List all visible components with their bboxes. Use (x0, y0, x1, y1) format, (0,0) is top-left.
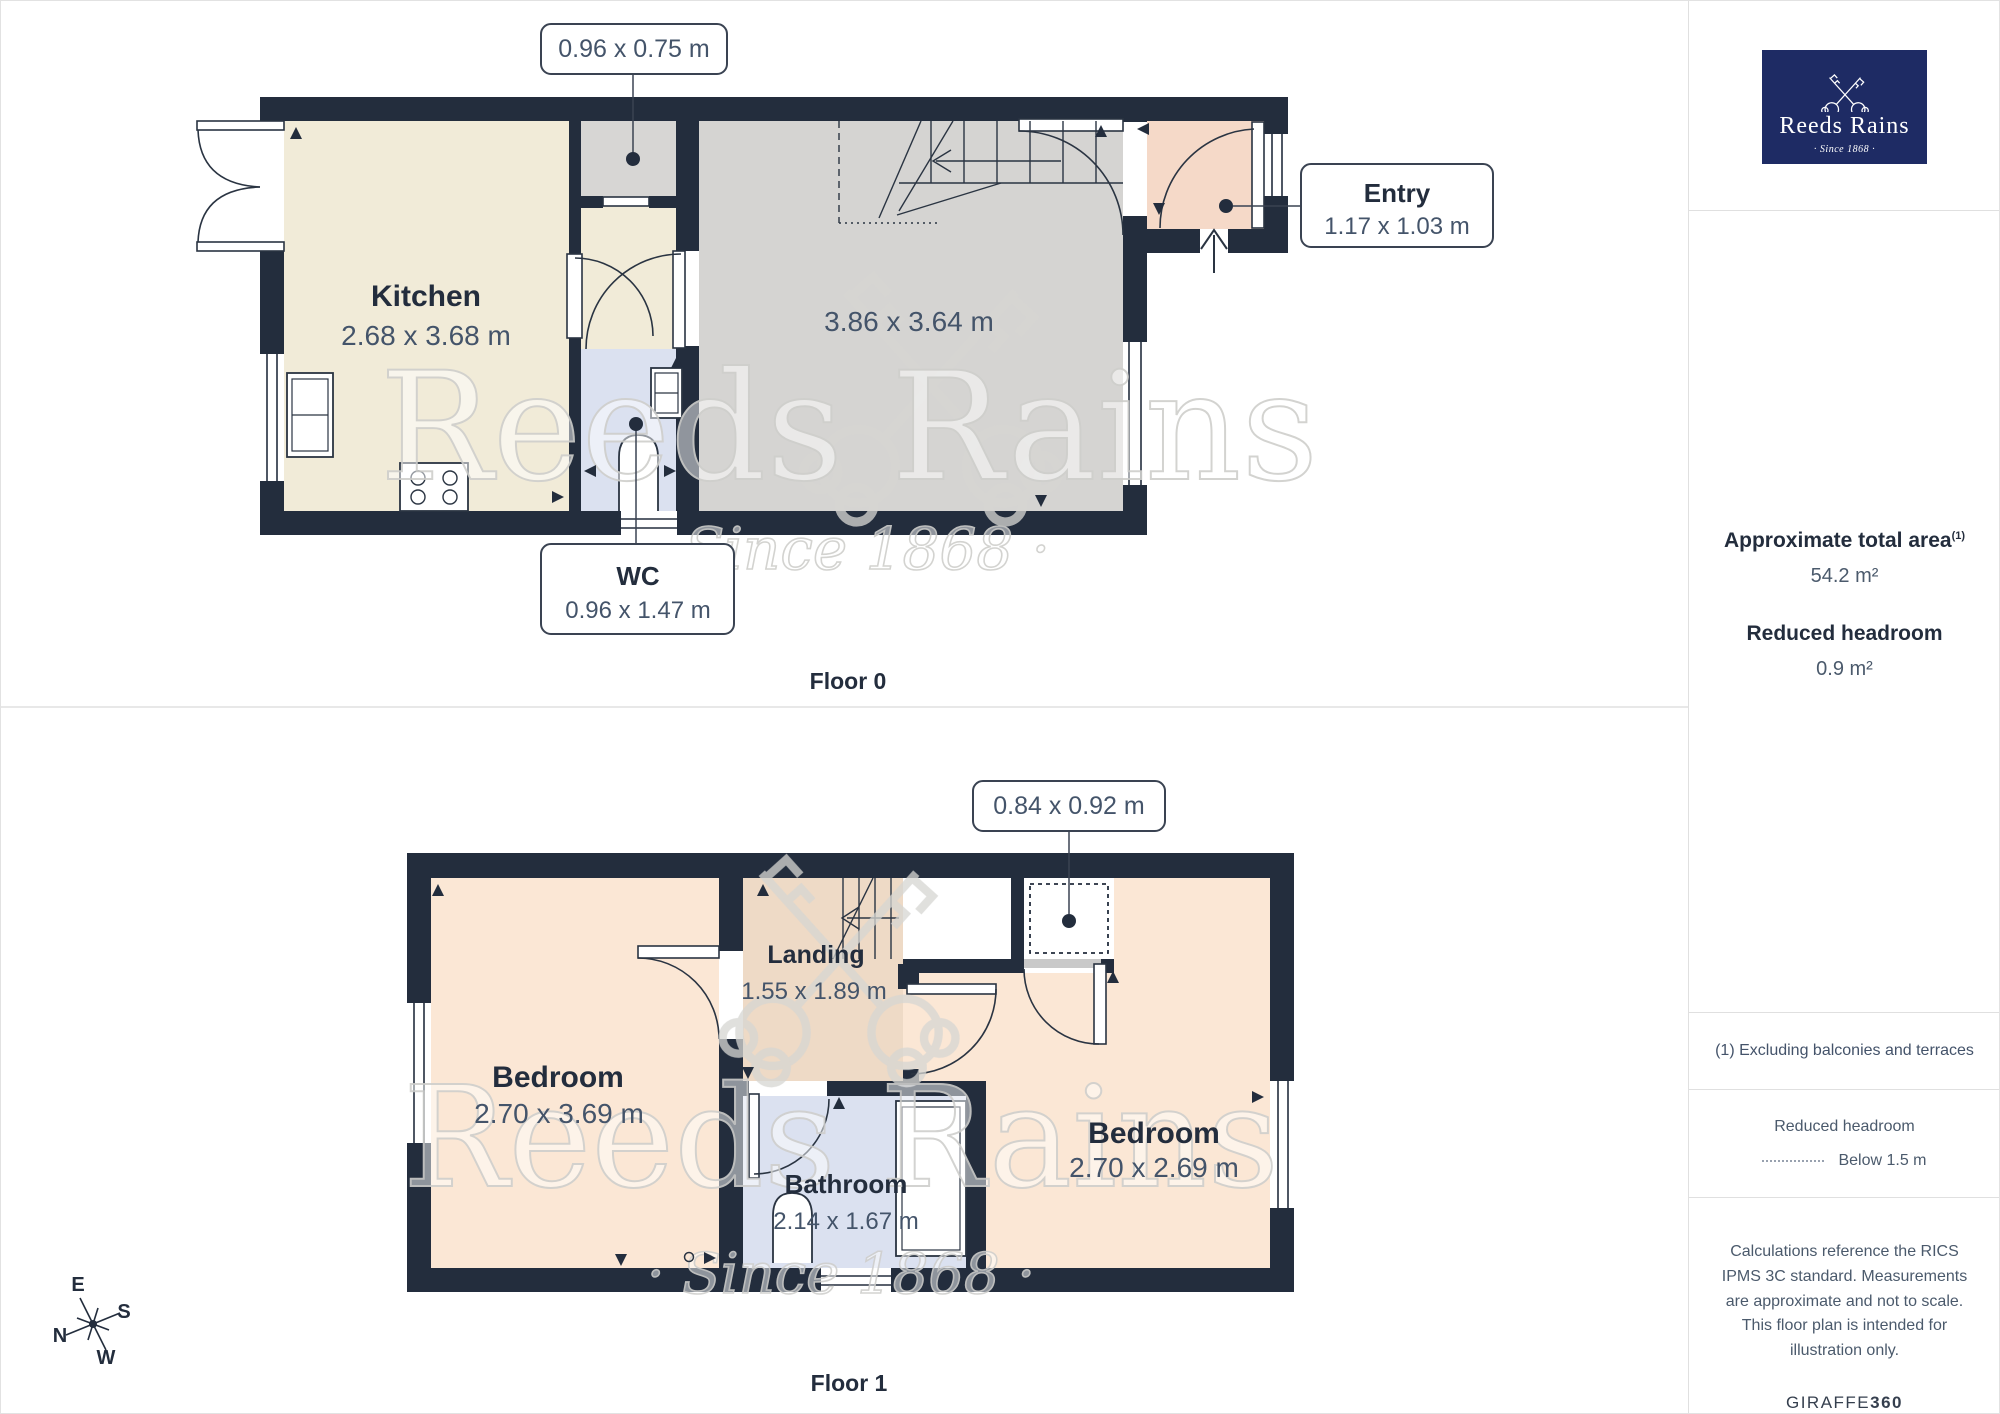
footnote-text: (1) Excluding balconies and terraces (1715, 1042, 1974, 1060)
svg-text:0.96 x 0.75 m: 0.96 x 0.75 m (558, 35, 709, 63)
living-dims: 3.86 x 3.64 m (824, 306, 994, 337)
bedroom-right-label: Bedroom (1088, 1117, 1220, 1150)
svg-text:0.84 x 0.92 m: 0.84 x 0.92 m (993, 792, 1144, 820)
area-footnote-marker: (1) (1952, 530, 1965, 542)
disclaimer-text: Calculations reference the RICS IPMS 3C … (1715, 1240, 1974, 1364)
bedroom-left-dims: 2.70 x 3.69 m (474, 1098, 644, 1129)
kitchen-label: Kitchen (371, 280, 481, 313)
area-heading: Approximate total area(1) (1689, 529, 2000, 553)
headroom-value: 0.9 m² (1689, 658, 2000, 681)
brand-tagline: · Since 1868 · (1814, 144, 1875, 155)
entry-dot (1219, 199, 1233, 213)
room-entry (1147, 121, 1264, 229)
floorplan-page: Reeds Rains · Since 1868 · Reeds Rains ·… (0, 0, 2000, 1414)
svg-text:W: W (97, 1347, 116, 1369)
dotted-line-icon (1762, 1160, 1824, 1162)
wc-dot (629, 417, 643, 431)
logo-section: Reeds Rains · Since 1868 · (1689, 1, 2000, 211)
room-hall (581, 199, 676, 349)
info-sidebar: Reeds Rains · Since 1868 · Approximate t… (1688, 1, 2000, 1414)
brand-name: Reeds Rains (1779, 114, 1909, 138)
compass-icon (66, 1298, 120, 1350)
disclaimer-section: Calculations reference the RICS IPMS 3C … (1689, 1198, 2000, 1414)
svg-text:S: S (117, 1301, 130, 1323)
svg-text:N: N (53, 1325, 67, 1347)
area-section: Approximate total area(1) 54.2 m² Reduce… (1689, 211, 2000, 1013)
closet-f0-dot (626, 152, 640, 166)
room-bedroom-right-top (1114, 878, 1270, 973)
landing-dims: 1.55 x 1.89 m (741, 978, 886, 1005)
svg-text:1.17 x 1.03 m: 1.17 x 1.03 m (1324, 213, 1469, 240)
closet-f1-dot (1062, 914, 1076, 928)
svg-text:E: E (71, 1274, 84, 1296)
landing-label: Landing (767, 941, 864, 969)
bathroom-label: Bathroom (785, 1169, 908, 1199)
svg-text:· Since 1868 ·: · Since 1868 · (647, 1242, 1035, 1307)
legend-item: Below 1.5 m (1838, 1152, 1926, 1170)
svg-text:0.96 x 1.47 m: 0.96 x 1.47 m (565, 597, 710, 624)
svg-text:WC: WC (616, 561, 660, 591)
svg-text:Entry: Entry (1364, 178, 1431, 208)
brand-logo: Reeds Rains · Since 1868 · (1762, 50, 1927, 164)
headroom-heading: Reduced headroom (1689, 622, 2000, 646)
legend-section: Reduced headroom Below 1.5 m (1689, 1090, 2000, 1198)
legend-title: Reduced headroom (1774, 1118, 1915, 1136)
floor0-title: Floor 0 (810, 668, 887, 694)
svg-text:Reeds Rains: Reeds Rains (380, 341, 1319, 515)
kitchen-dims: 2.68 x 3.68 m (341, 320, 511, 351)
bathroom-dims: 2.14 x 1.67 m (773, 1208, 918, 1235)
bedroom-left-label: Bedroom (492, 1061, 624, 1094)
giraffe360-brand: GIRAFFE360 (1715, 1390, 1974, 1414)
floor1-title: Floor 1 (811, 1370, 888, 1396)
crossed-keys-icon (1810, 60, 1880, 112)
kitchen-sink-icon (287, 373, 333, 457)
area-value: 54.2 m² (1689, 565, 2000, 588)
footnote-section: (1) Excluding balconies and terraces (1689, 1013, 2000, 1090)
bedroom-right-dims: 2.70 x 2.69 m (1069, 1152, 1239, 1183)
